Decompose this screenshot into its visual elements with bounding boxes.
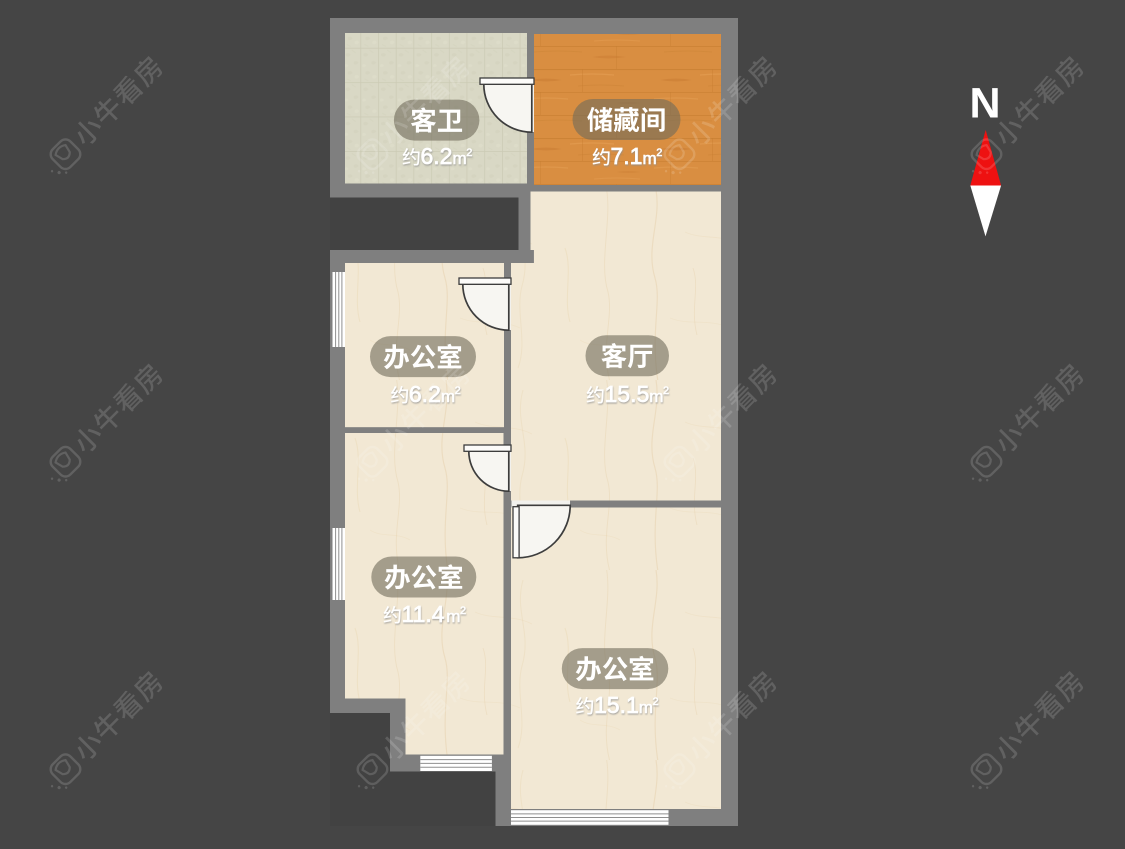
- svg-text:15.1: 15.1: [594, 692, 639, 718]
- svg-text:6.2: 6.2: [421, 143, 453, 169]
- svg-text:11.4: 11.4: [402, 601, 445, 627]
- svg-text:m: m: [446, 607, 460, 626]
- svg-text:m: m: [453, 149, 467, 168]
- svg-text:m: m: [643, 149, 657, 168]
- svg-text:2: 2: [663, 385, 669, 397]
- svg-text:N: N: [969, 80, 1000, 128]
- svg-text:15.5: 15.5: [605, 381, 650, 407]
- svg-text:m: m: [649, 387, 663, 406]
- svg-text:m: m: [639, 698, 653, 717]
- svg-text:7.1: 7.1: [611, 143, 643, 169]
- svg-text:2: 2: [653, 696, 659, 708]
- svg-text:2: 2: [460, 605, 466, 617]
- svg-text:2: 2: [466, 147, 472, 159]
- svg-text:2: 2: [656, 147, 662, 159]
